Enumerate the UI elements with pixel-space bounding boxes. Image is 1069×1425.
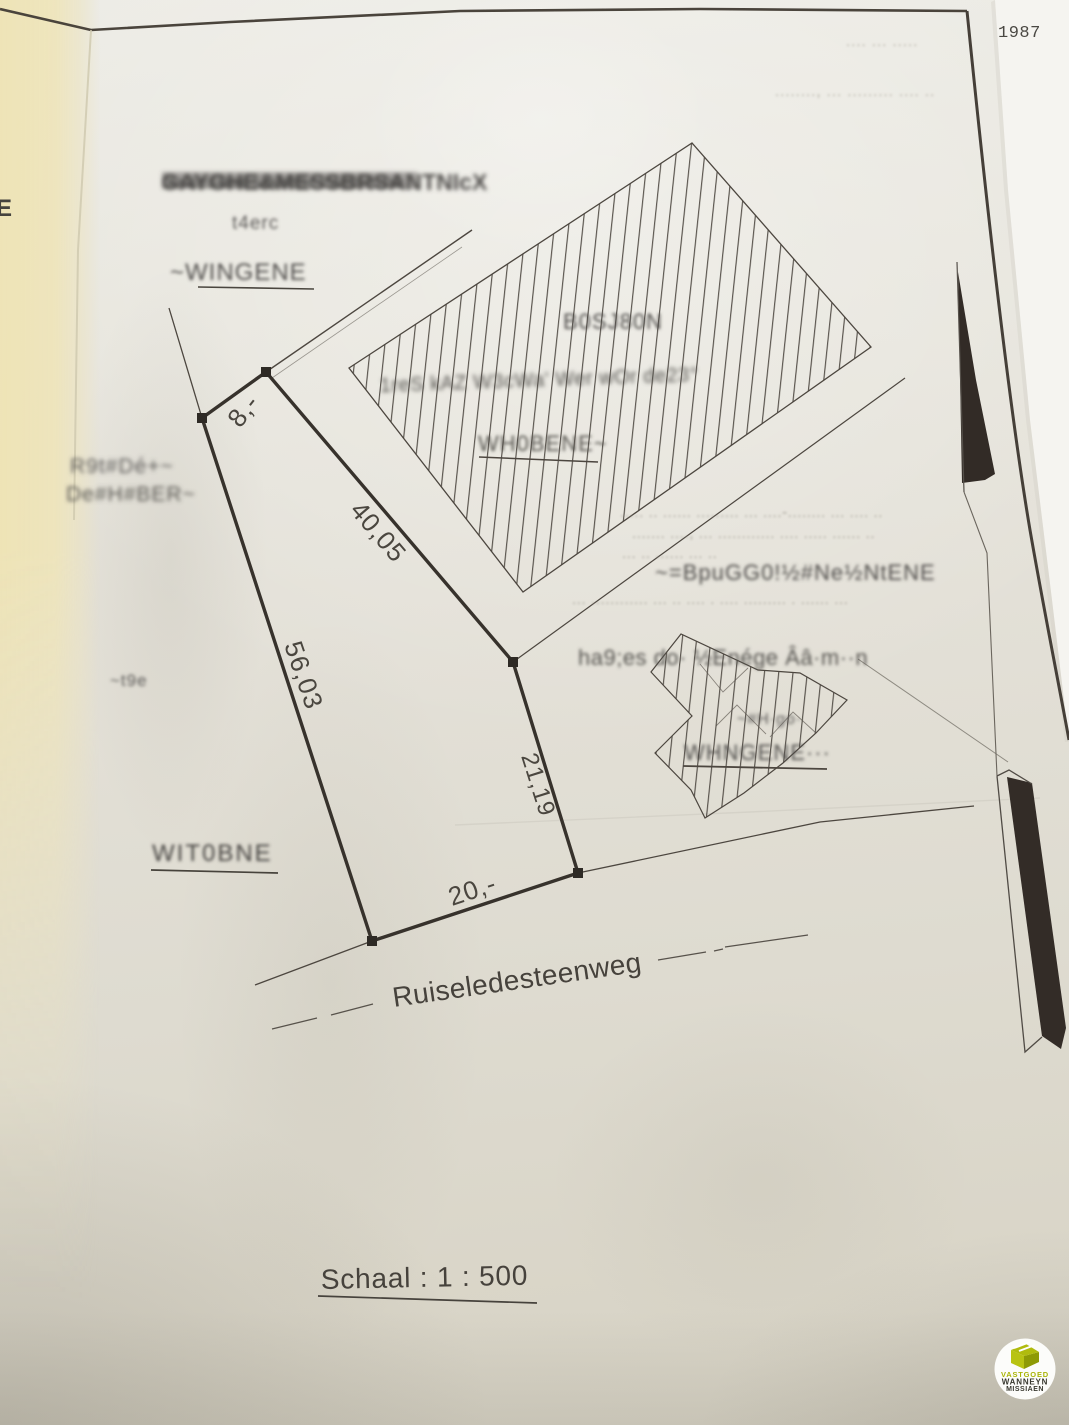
svg-text:21,19: 21,19 (515, 750, 560, 820)
svg-text:... .. ...... ... ..: ... .. ...... ... .. (622, 545, 717, 562)
svg-text:........, ... ......... ...: ........, ... ......... .... .. (775, 83, 935, 100)
svg-text:... ............ ... .. ..: ... ............ ... .. .... . .... ....… (572, 591, 849, 608)
svg-text:MISSIAEN: MISSIAEN (1006, 1386, 1044, 1393)
svg-text:20,-: 20,- (444, 868, 500, 912)
svg-text:8,-: 8,- (221, 388, 265, 433)
svg-text:~#H·go·: ~#H·go· (737, 711, 802, 728)
svg-text:R9t#Dé+~: R9t#Dé+~ (70, 455, 174, 478)
svg-text:~t9e: ~t9e (110, 671, 148, 690)
svg-text:Schaal : 1 : 500: Schaal : 1 : 500 (320, 1260, 528, 1295)
svg-text:Ruiseledesteenweg: Ruiseledesteenweg (390, 946, 643, 1013)
svg-text:t4erc: t4erc (232, 213, 279, 234)
svg-text:.... ... .....: .... ... ..... (846, 33, 918, 50)
svg-text:E: E (0, 195, 13, 222)
svg-text:..... .. ...... .........: ..... .. ...... ......... ... ....-.....… (620, 504, 883, 521)
svg-text:WH0BENE~: WH0BENE~ (478, 431, 608, 456)
svg-text:B0SJ80N: B0SJ80N (563, 309, 663, 334)
svg-text:1987: 1987 (998, 24, 1041, 43)
svg-text:ha9;es do· ½Enége Ââ·m··n: ha9;es do· ½Enége Ââ·m··n (578, 645, 868, 670)
svg-text:....... ...., ... .........: ....... ...., ... ............ .... ....… (632, 525, 875, 542)
svg-text:De#H#BER~: De#H#BER~ (66, 483, 196, 506)
svg-text:WIT0BNE: WIT0BNE (152, 840, 273, 867)
svg-text:~=BpuGG0!½#Ne½NtENE: ~=BpuGG0!½#Ne½NtENE (655, 560, 936, 585)
svg-text:~WINGENE: ~WINGENE (170, 259, 307, 286)
svg-text:WHNGENE···: WHNGENE··· (684, 740, 831, 765)
